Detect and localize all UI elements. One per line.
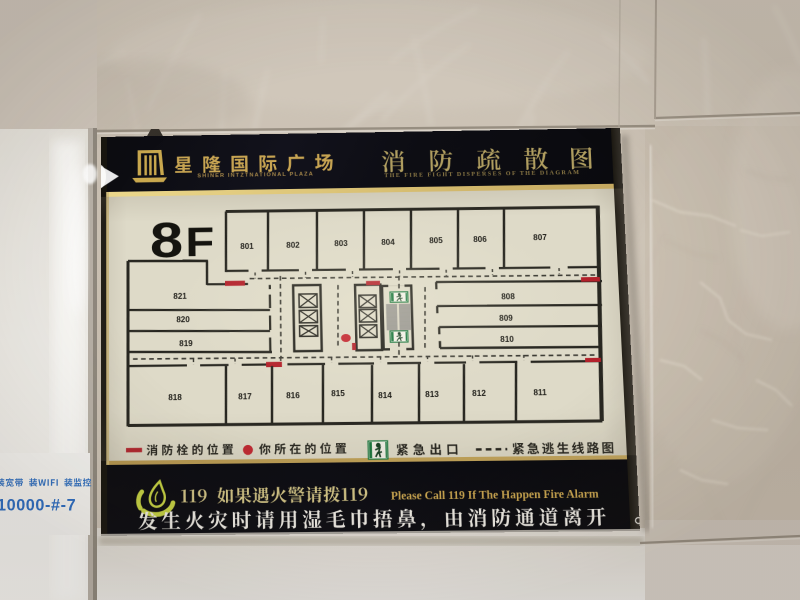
svg-text:805: 805	[429, 236, 443, 245]
svg-text:F: F	[185, 220, 214, 266]
svg-text:803: 803	[334, 239, 348, 248]
svg-text:810: 810	[500, 335, 515, 344]
svg-text:813: 813	[425, 390, 440, 400]
svg-text:809: 809	[499, 314, 514, 323]
svg-text:807: 807	[533, 233, 547, 242]
svg-text:820: 820	[176, 315, 190, 324]
svg-text:818: 818	[168, 393, 182, 403]
svg-text:812: 812	[472, 389, 487, 399]
svg-text:802: 802	[286, 241, 300, 250]
svg-text:815: 815	[331, 389, 346, 399]
svg-text:8: 8	[150, 213, 183, 269]
svg-text:806: 806	[473, 235, 488, 244]
svg-text:SHINER INTZTNATIONAL PLAZA: SHINER INTZTNATIONAL PLAZA	[197, 171, 314, 179]
svg-text:811: 811	[533, 388, 547, 398]
svg-text:817: 817	[238, 392, 252, 402]
svg-text:Please Call 119 If The Happen: Please Call 119 If The Happen Fire Alarm	[391, 488, 599, 503]
svg-text:816: 816	[286, 391, 300, 401]
svg-text:804: 804	[381, 238, 395, 247]
svg-text:801: 801	[240, 242, 254, 251]
svg-text:819: 819	[179, 339, 193, 348]
svg-text:814: 814	[378, 391, 393, 401]
svg-text:THE FIRE FIGHT DISPERSES OF TH: THE FIRE FIGHT DISPERSES OF THE DIAGRAM	[384, 170, 580, 179]
svg-text:10000-#-7: 10000-#-7	[0, 497, 76, 515]
svg-text:808: 808	[501, 292, 516, 301]
svg-text:821: 821	[173, 292, 187, 301]
